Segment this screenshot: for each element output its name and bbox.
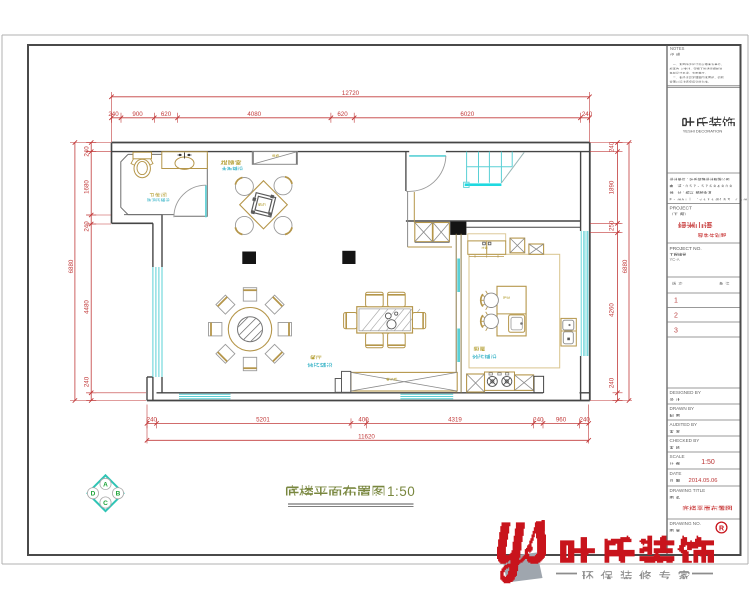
svg-text:240: 240: [147, 417, 158, 424]
svg-text:4319: 4319: [448, 417, 462, 424]
svg-text:PROJECT NO.: PROJECT NO.: [670, 246, 702, 252]
svg-text:C: C: [103, 500, 108, 507]
svg-text:240: 240: [108, 111, 119, 118]
svg-text:6880: 6880: [622, 259, 629, 273]
svg-text:240: 240: [609, 377, 616, 388]
svg-text:PROJECT: PROJECT: [670, 206, 692, 212]
svg-text:1890: 1890: [609, 180, 616, 194]
svg-text:1680: 1680: [84, 180, 91, 194]
svg-text:6880: 6880: [68, 259, 75, 273]
svg-text:SCALE: SCALE: [670, 454, 685, 459]
svg-text:CHECKED BY: CHECKED BY: [670, 438, 700, 443]
svg-text:YC-A: YC-A: [670, 257, 680, 262]
svg-text:NOTES: NOTES: [670, 46, 685, 51]
svg-text:250: 250: [609, 220, 616, 231]
svg-text:960: 960: [556, 417, 567, 424]
svg-text:400: 400: [358, 417, 369, 424]
svg-text:240: 240: [582, 111, 593, 118]
svg-text:240: 240: [84, 221, 91, 232]
svg-text:240: 240: [533, 417, 544, 424]
svg-text:4080: 4080: [247, 111, 261, 118]
svg-text:D: D: [91, 491, 96, 498]
svg-text:3: 3: [674, 328, 678, 335]
svg-text:DATE: DATE: [670, 471, 682, 476]
svg-text:A: A: [103, 481, 108, 488]
svg-text:4260: 4260: [609, 303, 616, 317]
svg-text:B: B: [116, 491, 121, 498]
svg-text:AUDITED BY: AUDITED BY: [670, 422, 698, 427]
svg-text:620: 620: [161, 111, 172, 118]
svg-text:2014.05.06: 2014.05.06: [688, 478, 717, 484]
svg-text:240: 240: [609, 141, 616, 152]
svg-text:1:50: 1:50: [701, 459, 715, 466]
svg-text:4480: 4480: [84, 300, 91, 314]
svg-text:240: 240: [84, 146, 91, 157]
svg-text:1: 1: [674, 298, 678, 305]
svg-text:YESHI DECORATION: YESHI DECORATION: [683, 129, 723, 134]
svg-text:DESIGNED BY: DESIGNED BY: [670, 390, 701, 395]
svg-text:620: 620: [337, 111, 348, 118]
svg-text:11620: 11620: [358, 434, 375, 441]
svg-text:240: 240: [84, 376, 91, 387]
svg-text:DRAWING TITLE: DRAWING TITLE: [670, 488, 706, 493]
svg-text:DRAWING NO.: DRAWING NO.: [670, 521, 701, 526]
svg-text:DRAWN BY: DRAWN BY: [670, 406, 695, 411]
svg-text:6020: 6020: [460, 111, 474, 118]
svg-text:R: R: [719, 525, 724, 532]
svg-text:5201: 5201: [256, 417, 270, 424]
svg-text:900: 900: [132, 111, 143, 118]
svg-text:2: 2: [674, 313, 678, 320]
svg-text:1:50: 1:50: [387, 484, 415, 499]
svg-text:12720: 12720: [342, 90, 360, 97]
